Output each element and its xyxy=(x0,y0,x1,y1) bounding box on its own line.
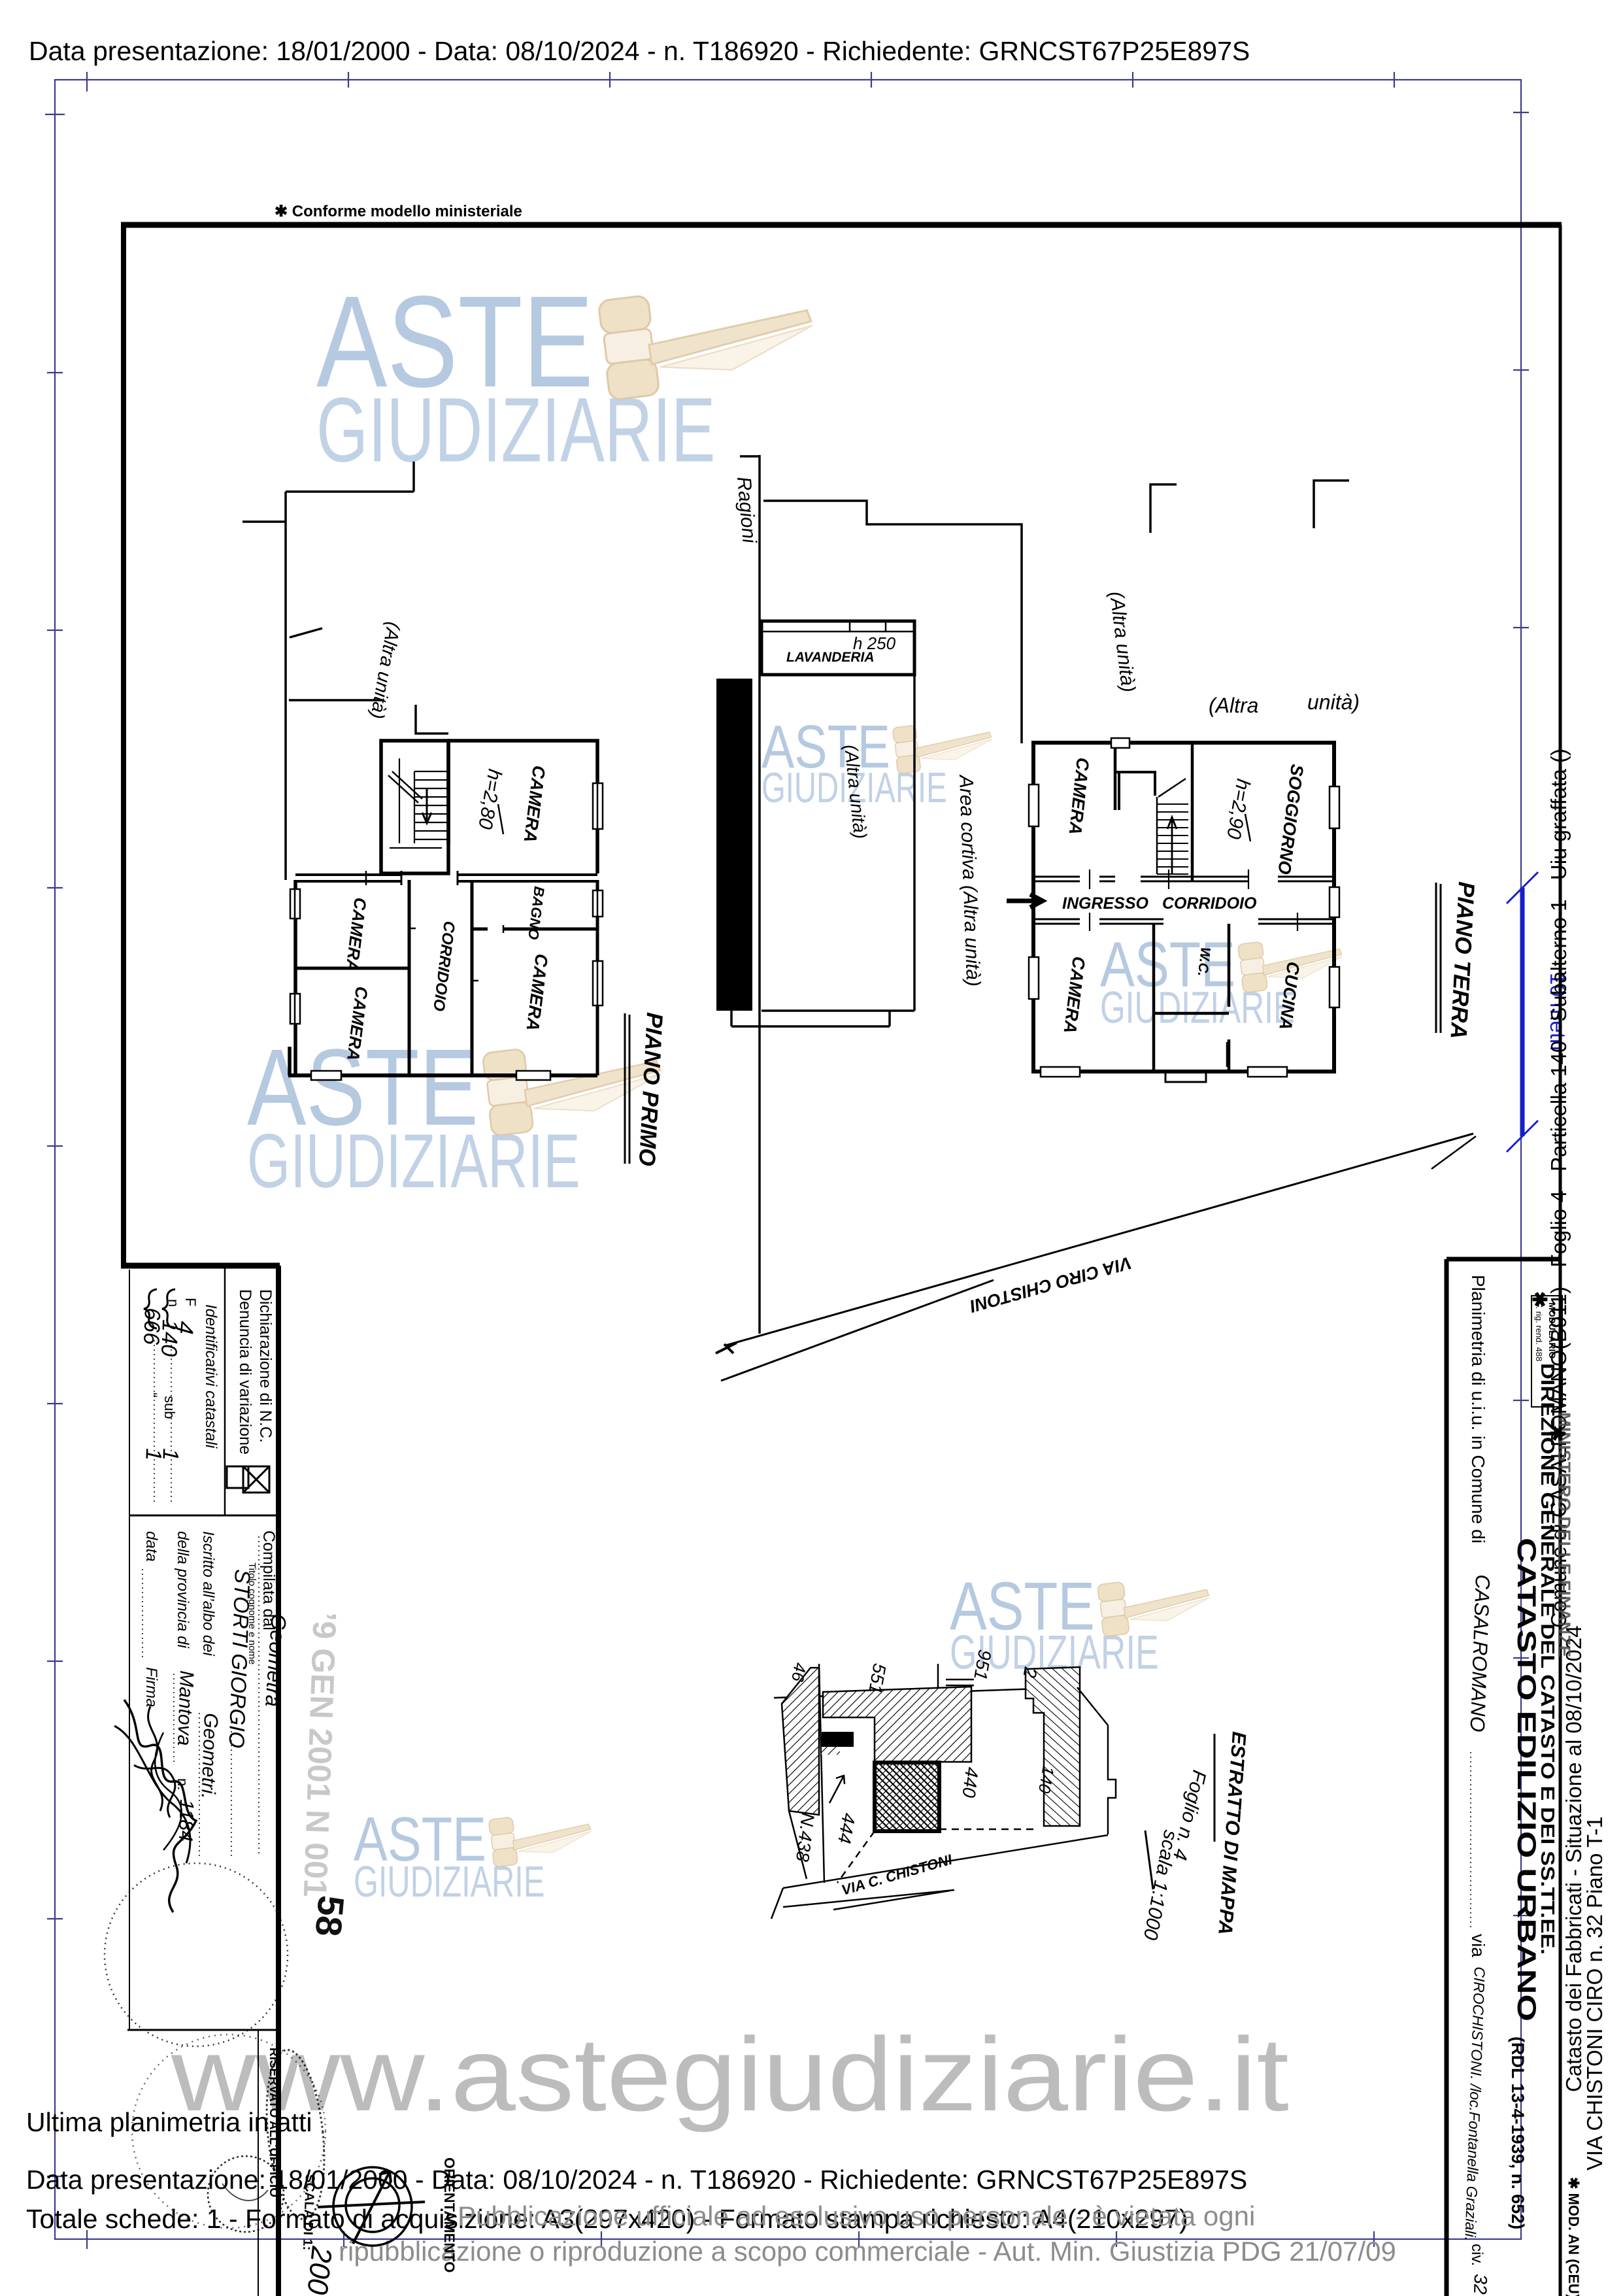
svg-text:32: 32 xyxy=(1470,2274,1491,2295)
svg-text:VIA CHISTONI CIRO n. 32 Piano: VIA CHISTONI CIRO n. 32 Piano T-1 xyxy=(1582,1816,1607,2170)
svg-text:RISERVATO ALL’UFFICIO: RISERVATO ALL’UFFICIO xyxy=(267,2048,280,2197)
svg-text:✱: ✱ xyxy=(1528,1291,1550,1308)
svg-text:Mantova: Mantova xyxy=(173,1670,197,1746)
svg-text:h 250: h 250 xyxy=(853,633,896,653)
svg-text:“: “ xyxy=(142,1393,160,1398)
svg-text:(RDL 13-4-1939, n. 652): (RDL 13-4-1939, n. 652) xyxy=(1508,2036,1528,2229)
svg-text:F. rig. rend. 488: F. rig. rend. 488 xyxy=(1534,1302,1544,1361)
svg-text:✱ Conforme modello ministerial: ✱ Conforme modello ministeriale xyxy=(275,203,522,220)
svg-text:✱ MOD. AN (CEU): ✱ MOD. AN (CEU) xyxy=(1565,2177,1582,2296)
svg-text:Denuncia di variazione: Denuncia di variazione xyxy=(236,1289,254,1455)
svg-text:Pubblicazione ufficiale ad esc: Pubblicazione ufficiale ad esclusivo uso… xyxy=(458,2201,1255,2231)
svg-text:Data presentazione: 18/01/2000: Data presentazione: 18/01/2000 - Data: 0… xyxy=(26,2165,1247,2195)
svg-text:46: 46 xyxy=(788,1661,811,1683)
svg-text:MINISTERO DELLE FINANZE: MINISTERO DELLE FINANZE xyxy=(1554,1412,1574,1657)
svg-text:(Altra: (Altra xyxy=(1209,694,1258,717)
svg-text:SCALA DI 1:: SCALA DI 1: xyxy=(300,2174,317,2251)
svg-text:58: 58 xyxy=(308,1894,352,1938)
svg-text:1: 1 xyxy=(141,1448,166,1461)
svg-text:INGRESSO: INGRESSO xyxy=(1062,894,1149,913)
svg-text:civ.: civ. xyxy=(1468,2244,1486,2266)
svg-text:Planimetria di u.i.u. in C: Planimetria di u.i.u. in Comune di xyxy=(1468,1275,1488,1544)
svg-text:della provincia di: della provincia di xyxy=(174,1531,192,1648)
svg-text:www.astegiudiziarie.it: www.astegiudiziarie.it xyxy=(171,2016,1289,2133)
svg-text:unità): unità) xyxy=(1307,690,1360,714)
svg-text:Geometri.: Geometri. xyxy=(197,1713,222,1800)
svg-text:F: F xyxy=(182,1298,199,1306)
svg-text:Data presentazione: 18/01/2000: Data presentazione: 18/01/2000 - Data: 0… xyxy=(29,36,1250,66)
svg-text:MODULARIO: MODULARIO xyxy=(1547,1302,1558,1359)
svg-text:ripubblicazione o riproduzione: ripubblicazione o riproduzione a scopo c… xyxy=(339,2236,1396,2267)
svg-text:Firma: Firma xyxy=(142,1667,160,1707)
svg-text:CORRIDOIO: CORRIDOIO xyxy=(1162,894,1257,913)
svg-text:CATASTO EDILIZIO URBANO: CATASTO EDILIZIO URBANO xyxy=(1512,1538,1541,2021)
svg-text:200: 200 xyxy=(301,2244,338,2296)
svg-text:via: via xyxy=(1468,1934,1488,1957)
svg-text:data: data xyxy=(142,1531,160,1562)
svg-text:✱: ✱ xyxy=(1546,1425,1567,1442)
svg-text:sub: sub xyxy=(161,1396,178,1419)
svg-text:440: 440 xyxy=(958,1766,982,1799)
svg-text:ORIENTAMENTO: ORIENTAMENTO xyxy=(441,2157,458,2272)
svg-text:Iscritto all’albo dei: Iscritto all’albo dei xyxy=(199,1531,217,1656)
svg-text:Dichiarazione di N.C.: Dichiarazione di N.C. xyxy=(256,1289,275,1443)
svg-text:Identificativi catastali: Identificativi catastali xyxy=(202,1304,220,1449)
